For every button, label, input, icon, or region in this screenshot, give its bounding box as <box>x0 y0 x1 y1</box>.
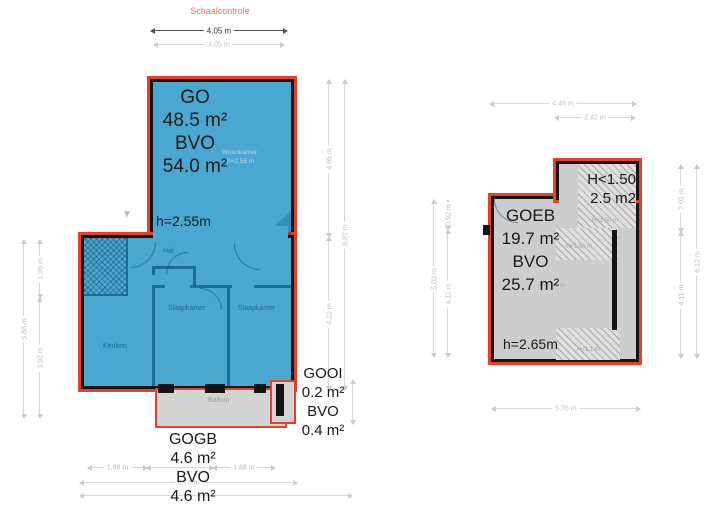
area-label-gogb: GOGB 4.6 m² BVO 4.6 m² <box>145 430 241 506</box>
dim-left-lower: 3.92 m <box>39 298 40 418</box>
room-label-slaapkamer-1: Slaapkamer <box>168 305 205 312</box>
scale-check-dim: 4.05 m <box>151 30 287 31</box>
dim-right-outer: 8.87 m <box>344 80 345 390</box>
seam-patch <box>153 226 288 246</box>
bathroom-wall <box>152 266 155 275</box>
interior-wall <box>152 285 155 386</box>
dim-right-upper: 4.65 m <box>328 80 329 237</box>
shaft-hatch <box>84 238 128 296</box>
dim-left-outer: 5.88 m <box>23 240 24 418</box>
room-label-balkon: Balkon <box>208 397 229 404</box>
low-height-label: H<1.50 2.5 m2 <box>556 170 636 208</box>
niche-wall <box>276 384 284 416</box>
room-label-slaapkamer-2: Slaapkamer <box>238 305 275 312</box>
room-label-woonkamer-faint: Woonkamer h=2.55 m <box>222 148 257 166</box>
ceiling-height-label: h=2.65m <box>503 336 558 352</box>
floorplan-canvas: Schaalcontrole 4.05 m 4.05 m <box>0 0 720 509</box>
interior-wall <box>227 285 230 386</box>
scale-check-dim-secondary: 4.05 m <box>154 44 284 45</box>
go-area: 48.5 m² <box>147 109 243 132</box>
dim-left-lower: 4.11 m <box>447 230 448 357</box>
entrance-marker-icon: ▼ <box>122 210 132 220</box>
dim-top-total: 4.46 m <box>490 103 636 104</box>
window-stub <box>158 384 174 393</box>
dim-bottom-left-seg: 1.88 m <box>88 467 147 468</box>
ceiling-height-label: h=2.55m <box>156 213 211 229</box>
area-label-gooi: GOOI 0.2 m² BVO 0.4 m² <box>288 364 358 440</box>
dim-top-partial: 2.42 m <box>555 117 635 118</box>
dim-right-lower: 4.11 m <box>680 232 681 358</box>
bathroom-wall <box>193 266 196 288</box>
knee-wall <box>612 230 617 330</box>
dim-bottom: 5.76 m <box>492 408 640 409</box>
area-label-goeb: GOEB 19.7 m² BVO 25.7 m² <box>483 204 578 296</box>
low-ceiling-hatch <box>556 328 620 360</box>
window-stub <box>205 384 225 393</box>
interior-wall <box>254 285 291 288</box>
room-label-keuken: Keuken <box>103 343 127 350</box>
dim-left-upper: 1.96 m <box>39 240 40 298</box>
go-line: GO <box>147 86 243 109</box>
hatch-height-label: H<1.50 m <box>592 218 618 224</box>
dim-right-outer: 6.12 m <box>696 165 697 358</box>
interior-wall <box>190 285 232 288</box>
dim-label: 4.05 m <box>204 26 234 35</box>
balcony <box>155 388 287 428</box>
dim-right-upper: 2.01 m <box>680 165 681 232</box>
dim-left-outer: 5.03 m <box>433 200 434 357</box>
hatch-height-label: H<1.1 m <box>577 347 600 353</box>
window-stub <box>254 384 266 393</box>
room-label-hal: Hal <box>163 248 174 255</box>
dim-left-upper: 0.92 m <box>447 200 448 230</box>
dim-label: 4.05 m <box>205 40 232 49</box>
scale-check-title: Schaalcontrole <box>150 6 290 16</box>
